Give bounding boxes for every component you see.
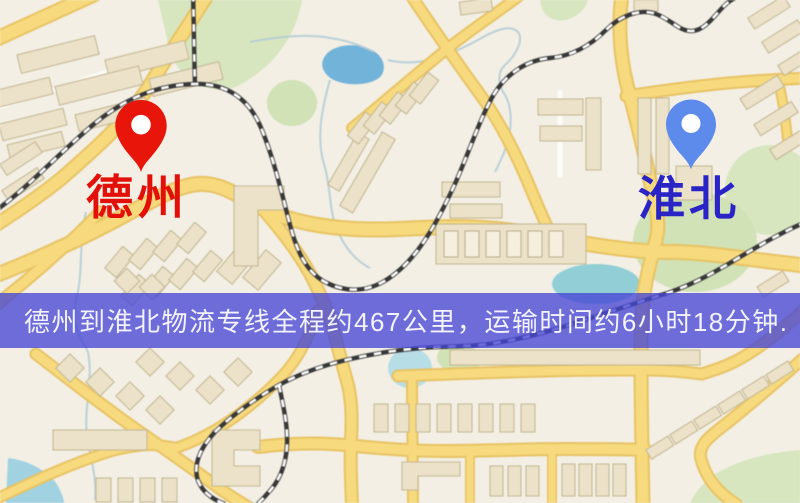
map-tiles: [0, 0, 800, 503]
origin-pin[interactable]: [115, 100, 167, 172]
destination-pin[interactable]: [666, 99, 716, 170]
pin-body: [115, 100, 166, 172]
route-info-banner: 德州到淮北物流专线全程约467公里，运输时间约6小时18分钟.: [0, 293, 800, 348]
pin-hole: [682, 114, 701, 133]
map-pin-icon: [666, 99, 716, 170]
route-info-text: 德州到淮北物流专线全程约467公里，运输时间约6小时18分钟.: [24, 302, 788, 339]
origin-city-label: 德州: [86, 176, 188, 223]
map-viewport[interactable]: 德州 淮北 德州到淮北物流专线全程约467公里，运输时间约6小时18分钟.: [0, 0, 800, 503]
map-pin-icon: [115, 100, 167, 172]
destination-city-label: 淮北: [638, 177, 740, 224]
pin-hole: [131, 115, 151, 135]
pin-body: [666, 100, 716, 170]
